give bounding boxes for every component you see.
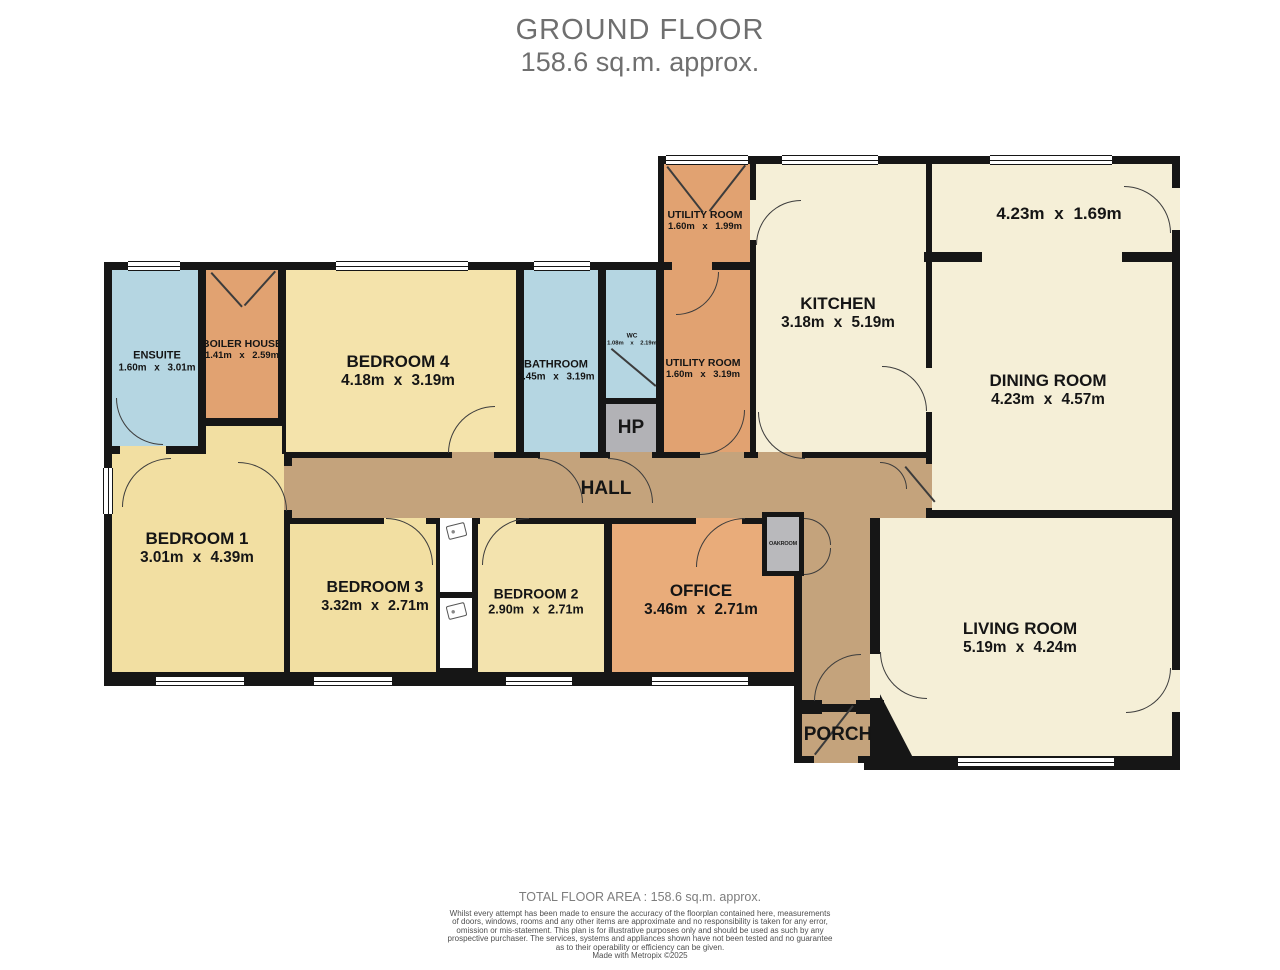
cylinder-icon xyxy=(445,602,467,620)
room-label-dining-annex: 4.23m x 1.69m xyxy=(996,204,1121,224)
window xyxy=(103,468,113,514)
window xyxy=(958,757,1114,767)
window xyxy=(314,676,392,686)
floor-title: GROUND FLOOR xyxy=(0,14,1280,47)
room-bedroom-1-notch xyxy=(206,426,282,460)
wall xyxy=(1122,252,1180,262)
room-oakroom: OAKROOM xyxy=(762,512,804,576)
room-label-ensuite: ENSUITE 1.60m x 3.01m xyxy=(119,350,196,375)
footer: TOTAL FLOOR AREA : 158.6 sq.m. approx. W… xyxy=(0,890,1280,960)
door-opening xyxy=(926,464,932,508)
door-opening xyxy=(540,452,580,458)
room-label-boiler-house: BOILER HOUSE 1.41m x 2.59m xyxy=(202,338,282,362)
room-label-bedroom-4: BEDROOM 4 4.18m x 3.19m xyxy=(341,352,455,390)
room-label-bedroom-2: BEDROOM 2 2.90m x 2.71m xyxy=(488,585,583,616)
floor-plan: GROUND FLOOR 158.6 sq.m. approx. HP OAKR… xyxy=(0,0,1280,970)
room-label-dining-room: DINING ROOM 4.23m x 4.57m xyxy=(989,371,1106,409)
wall xyxy=(794,700,822,714)
window xyxy=(128,261,180,271)
room-label-utility-room-top: UTILITY ROOM 1.60m x 1.99m xyxy=(667,209,742,233)
door-opening xyxy=(1172,188,1180,230)
wall xyxy=(856,700,884,714)
room-label-porch: PORCH xyxy=(804,724,873,746)
room-hp: HP xyxy=(606,404,656,452)
door-opening xyxy=(750,200,756,240)
room-label-bedroom-3: BEDROOM 3 3.32m x 2.71m xyxy=(321,579,429,615)
wall xyxy=(924,252,982,262)
total-floor-area: TOTAL FLOOR AREA : 158.6 sq.m. approx. xyxy=(0,890,1280,904)
door-opening xyxy=(814,756,858,763)
window xyxy=(990,155,1112,165)
door-opening xyxy=(1172,670,1180,712)
cylinder-icon xyxy=(445,522,467,540)
floor-area-subtitle: 158.6 sq.m. approx. xyxy=(0,47,1280,78)
cupboard xyxy=(440,598,472,668)
door-opening xyxy=(672,262,712,270)
cupboard xyxy=(440,518,472,592)
page-title: GROUND FLOOR 158.6 sq.m. approx. xyxy=(0,14,1280,78)
room-label-wc: WC 1.08m x 2.19m xyxy=(607,333,657,348)
window xyxy=(534,261,590,271)
window xyxy=(506,676,572,686)
door-opening xyxy=(610,452,652,458)
metropix-credit: Made with Metropix ©2025 xyxy=(0,952,1280,960)
hp-label: HP xyxy=(618,417,644,439)
room-label-office: OFFICE 3.46m x 2.71m xyxy=(644,581,758,619)
room-label-hall: HALL xyxy=(581,478,632,500)
door-opening xyxy=(120,446,166,454)
door-opening xyxy=(926,368,932,412)
room-label-utility-room: UTILITY ROOM 1.60m x 3.19m xyxy=(665,357,740,381)
oakroom-label: OAKROOM xyxy=(769,541,797,547)
door-opening xyxy=(870,654,880,698)
room-label-living-room: LIVING ROOM 5.19m x 4.24m xyxy=(963,619,1077,657)
french-door-window xyxy=(666,155,748,165)
window xyxy=(156,676,244,686)
room-label-bedroom-1: BEDROOM 1 3.01m x 4.39m xyxy=(140,529,254,567)
window xyxy=(652,676,748,686)
window xyxy=(782,155,878,165)
room-label-bathroom: BATHROOM 1.45m x 3.19m xyxy=(518,359,595,384)
room-label-kitchen: KITCHEN 3.18m x 5.19m xyxy=(781,294,895,332)
window xyxy=(336,261,468,271)
